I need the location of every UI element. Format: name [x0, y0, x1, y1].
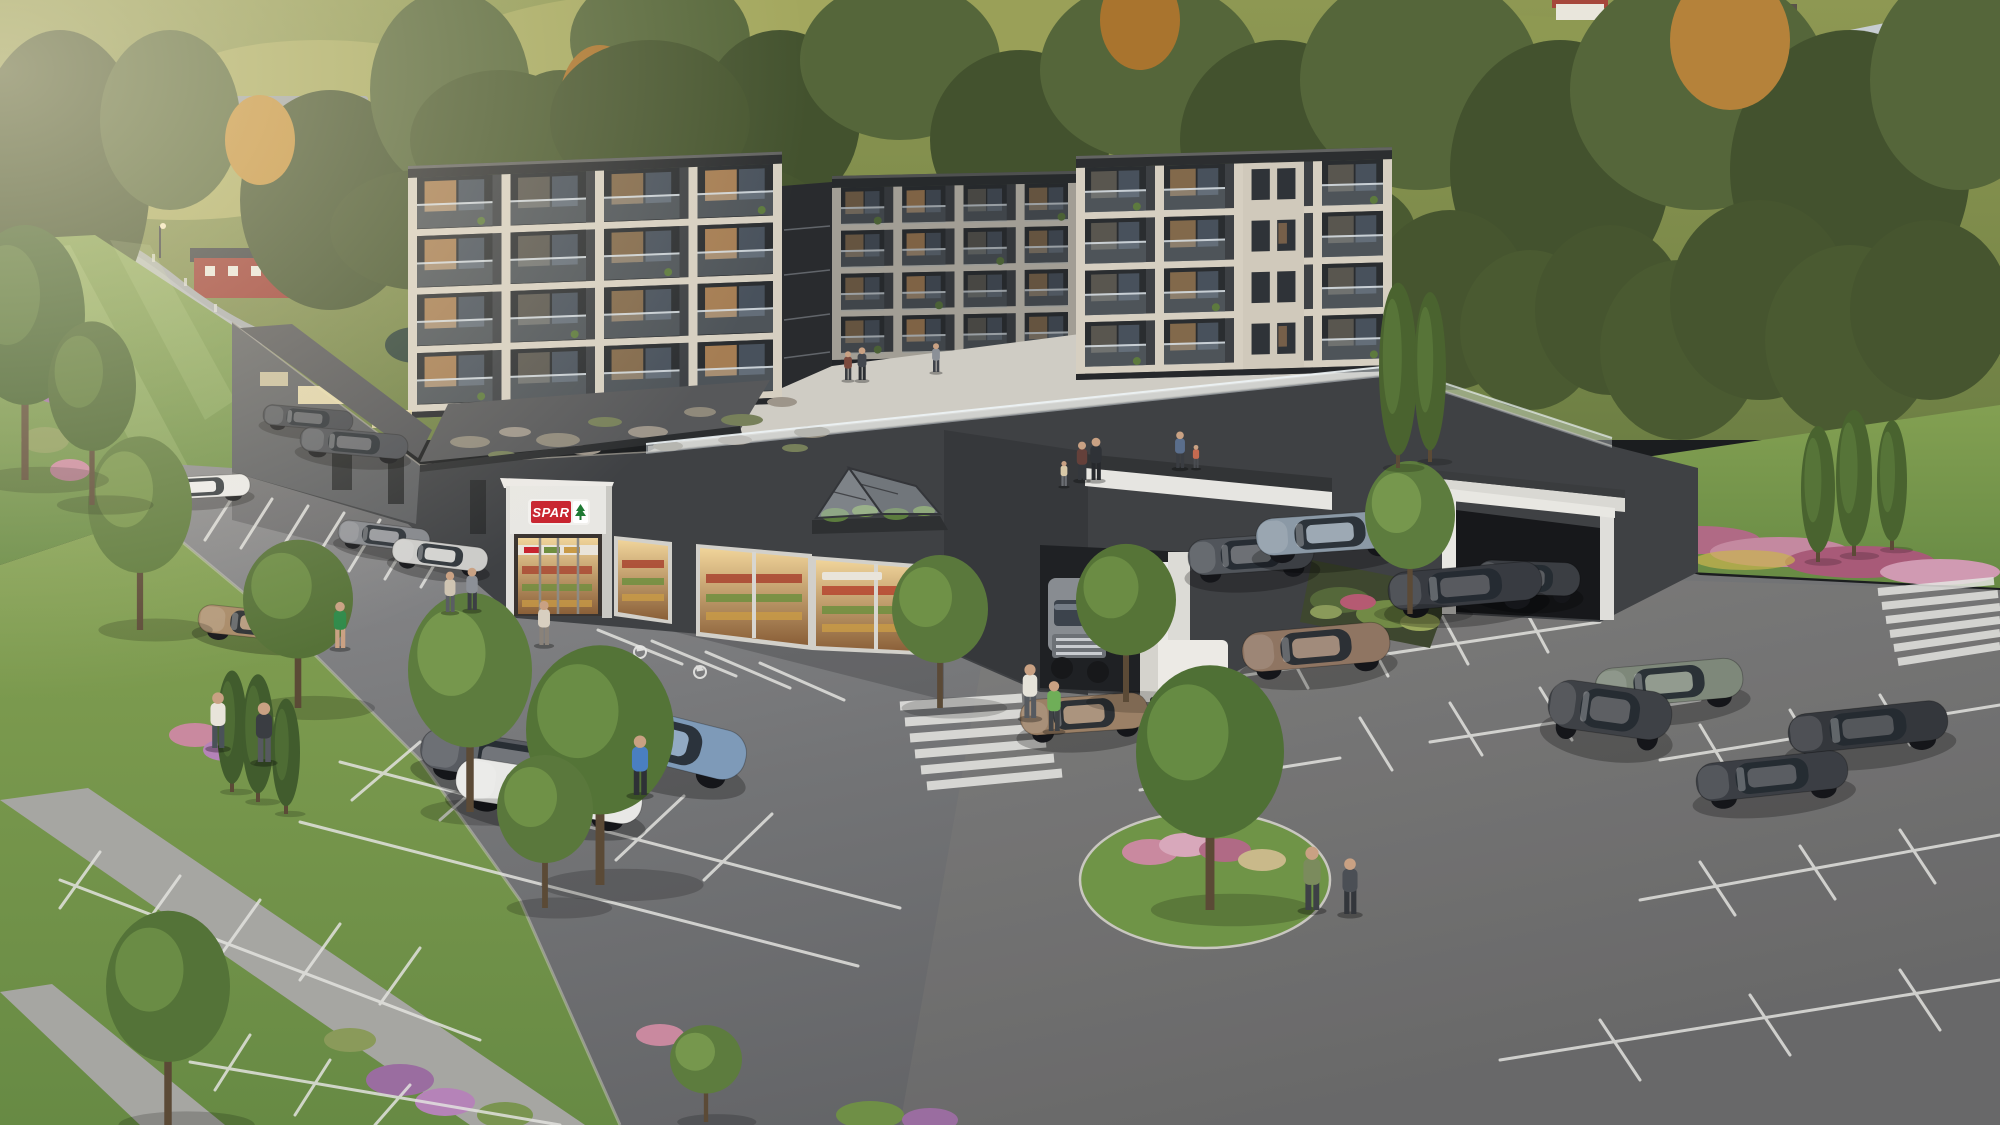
apartment-right-wing	[1076, 147, 1392, 380]
sun-flare	[0, 0, 900, 700]
architectural-rendering: SPAR	[0, 0, 2000, 1125]
